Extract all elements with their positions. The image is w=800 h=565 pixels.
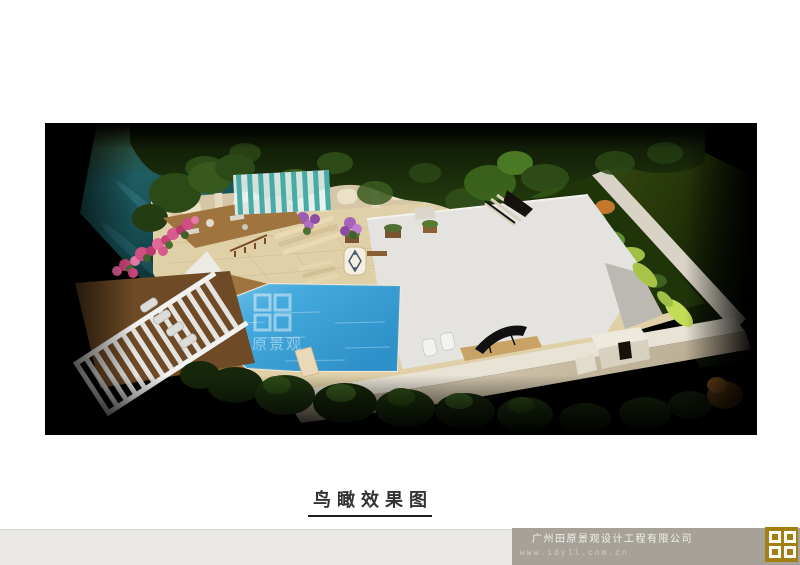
logo-square (784, 531, 796, 543)
striped-awning (233, 170, 331, 215)
logo-square-inner (772, 549, 778, 555)
company-logo (765, 527, 798, 562)
logo-square-inner (787, 549, 793, 555)
company-name: 广州田原景观设计工程有限公司 (532, 533, 800, 546)
paving-medallion (344, 247, 366, 275)
logo-square (769, 546, 781, 558)
render-scene: 田原景观 (45, 123, 757, 435)
image-caption: 鸟瞰效果图 (300, 489, 440, 517)
logo-square (784, 546, 796, 558)
logo-square-inner (772, 534, 778, 540)
garden-bench (367, 251, 387, 256)
aerial-render-image: 田原景观 (45, 123, 757, 435)
website-url: www.idyll.com.cn (520, 548, 800, 559)
title-underline (308, 515, 432, 517)
gate-doorway (618, 341, 632, 360)
logo-square-inner (787, 534, 793, 540)
footer-bar: 广州田原景观设计工程有限公司 www.idyll.com.cn (512, 528, 800, 565)
roof-block (415, 206, 436, 219)
presentation-page: 田原景观 (0, 0, 800, 565)
page-title: 鸟瞰效果图 (300, 489, 440, 511)
logo-square (769, 531, 781, 543)
